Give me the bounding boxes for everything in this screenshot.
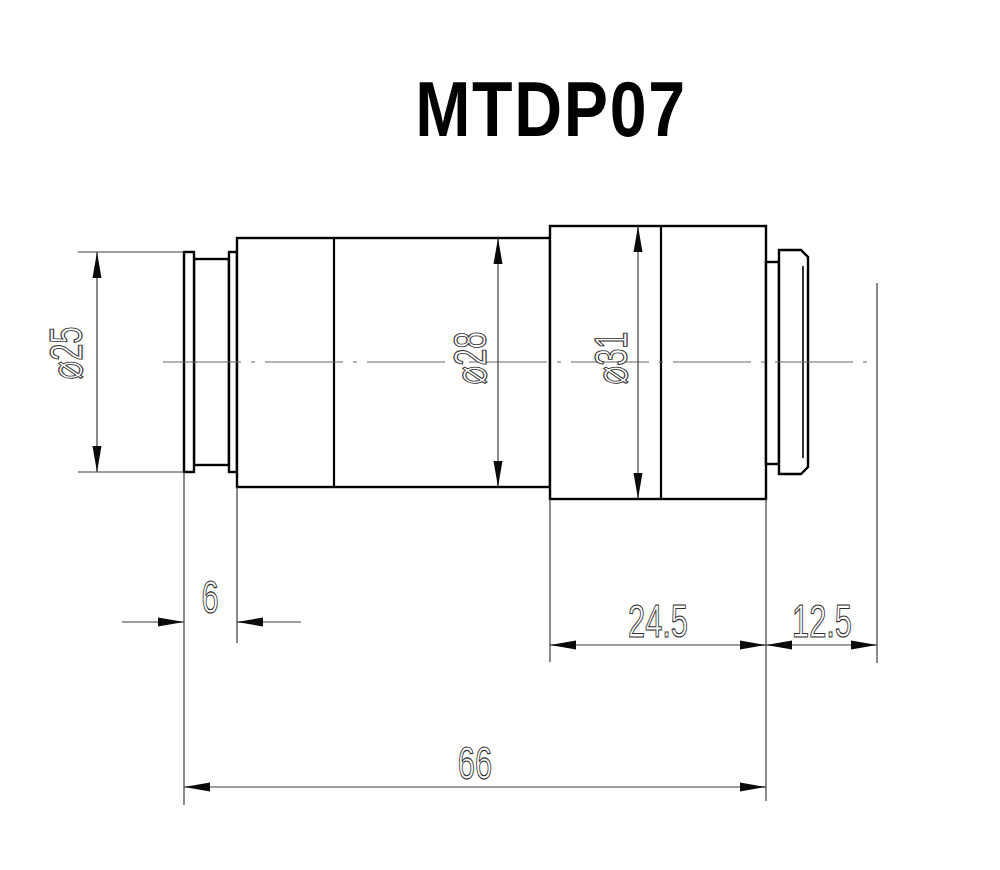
arrowhead-left [184, 783, 210, 792]
arrowhead-up [93, 252, 102, 278]
dimension-label-rear-section-length: 24.5 [628, 596, 688, 647]
mount-step [766, 262, 779, 464]
arrowhead-right [158, 618, 184, 627]
arrowhead-right [851, 641, 877, 650]
arrowhead-left [550, 641, 576, 650]
dimension-front-diameter: ⌀25 [41, 252, 184, 472]
arrowhead-right [740, 641, 766, 650]
drawing-title: MTDP07 [415, 65, 687, 152]
dimension-label-overall-length: 66 [458, 738, 492, 789]
arrowhead-left [766, 641, 792, 650]
dimension-label-mount-length: 12.5 [792, 596, 852, 647]
arrowhead-left [237, 618, 263, 627]
arrowhead-right [740, 783, 766, 792]
arrowhead-down [93, 446, 102, 472]
dimension-label-rear-diameter: ⌀31 [586, 332, 637, 385]
technical-drawing: MTDP07 ⌀25 [0, 0, 1000, 870]
title-block: MTDP07 [415, 65, 687, 152]
dimension-front-flange-length: 6 [122, 487, 301, 643]
dimension-label-front-flange-length: 6 [201, 572, 218, 623]
dimension-label-body-diameter: ⌀28 [445, 332, 496, 385]
drawing-canvas: MTDP07 ⌀25 [0, 0, 1000, 870]
dimension-label-front-diameter: ⌀25 [41, 327, 92, 380]
dimension-rear-section-length: 24.5 [550, 499, 766, 662]
